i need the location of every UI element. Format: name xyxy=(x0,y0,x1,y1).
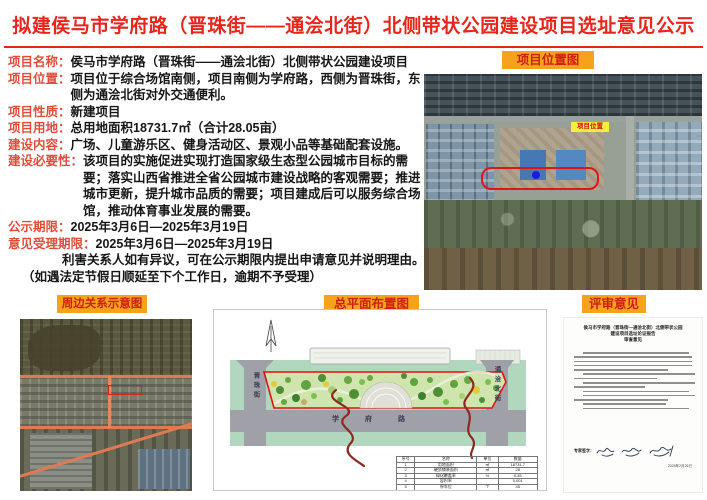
map-road xyxy=(20,426,192,429)
objection-note: 利害关系人如有异议，可在公示期限内提出申请意见并说明理由。 xyxy=(8,252,428,269)
info-text: 2025年3月6日—2025年3月19日 xyxy=(71,219,428,236)
doc-text-line xyxy=(583,395,695,397)
expert-signatures xyxy=(594,444,680,458)
info-row-notice-period: 公示期限： 2025年3月6日—2025年3月19日 xyxy=(8,219,428,236)
signature-label: 专家签字： xyxy=(574,448,594,454)
review-doc-body-lines xyxy=(574,352,692,412)
map-buildings xyxy=(138,449,190,489)
info-text: 广场、儿童游乐区、健身活动区、景观小品等基础配套设施。 xyxy=(71,137,428,154)
map-road xyxy=(108,376,111,428)
header-location-map: 项目位置图 xyxy=(502,51,594,69)
map-road xyxy=(20,375,192,378)
doc-text-line xyxy=(583,391,689,393)
header-review-opinion: 评审意见 xyxy=(582,295,646,313)
stadium-footprint xyxy=(310,348,450,364)
site-location-label: 项目位置 xyxy=(571,122,609,132)
road-label-left: 晋珠街 xyxy=(250,372,260,401)
review-date: 2025年2月26日 xyxy=(668,464,692,469)
road-label-right: 通浍北街 xyxy=(491,366,501,404)
site-marker-rect xyxy=(108,385,142,395)
info-row-name: 项目名称： 侯马市学府路（晋珠街——通浍北街）北侧带状公园建设项目 xyxy=(8,54,428,71)
table-row: 5 停车位 个 45 xyxy=(397,484,538,490)
title-divider xyxy=(4,46,703,48)
doc-text-line xyxy=(574,399,668,401)
info-row-location: 项目位置： 项目位于综合场馆南侧，项目南侧为学府路，西侧为晋珠街，东侧为通浍北街… xyxy=(8,71,428,104)
page-title: 拟建侯马市学府路（晋珠街——通浍北街）北侧带状公园建设项目选址意见公示 xyxy=(0,11,707,38)
doc-text-line xyxy=(574,365,692,367)
info-label: 项目用地： xyxy=(8,120,71,137)
info-label: 建设内容： xyxy=(8,137,71,154)
holiday-note: （如遇法定节假日顺延至下个工作日，逾期不予受理） xyxy=(8,269,428,286)
doc-text-line xyxy=(574,378,657,380)
info-row-content: 建设内容： 广场、儿童游乐区、健身活动区、景观小品等基础配套设施。 xyxy=(8,137,428,154)
info-text: 新建项目 xyxy=(71,104,428,121)
quantity-table: 序号 名称 单位 数量 1 用地面积 ㎡ 18731.7 2 硬质铺装面积 ㎡ … xyxy=(396,456,538,491)
site-marker-dot xyxy=(532,171,540,179)
review-doc-title-line3: 审查意见 xyxy=(564,337,702,343)
doc-text-line xyxy=(574,369,668,371)
map-buildings xyxy=(20,377,192,427)
site-boundary-outline xyxy=(481,167,599,190)
doc-text-line xyxy=(583,403,666,405)
project-info-block: 项目名称： 侯马市学府路（晋珠街——通浍北街）北侧带状公园建设项目 项目位置： … xyxy=(8,54,428,285)
info-row-land: 项目用地： 总用地面积18731.7㎡（合计28.05亩） xyxy=(8,120,428,137)
info-label: 意见受理期限： xyxy=(8,236,96,253)
info-text: 该项目的实施促进实现打造国家级生态型公园城市目标的需要；落实山西省推进全省公园城… xyxy=(83,153,428,219)
map-texture xyxy=(424,74,702,116)
header-surroundings-map: 周边关系示意图 xyxy=(57,295,147,313)
info-label: 项目位置： xyxy=(8,71,71,104)
info-label: 项目性质： xyxy=(8,104,71,121)
cell: 个 xyxy=(477,484,498,490)
info-row-necessity: 建设必要性： 该项目的实施促进实现打造国家级生态型公园城市目标的需要；落实山西省… xyxy=(8,153,428,219)
info-text: 2025年3月6日—2025年3月19日 xyxy=(96,236,428,253)
cell: 停车位 xyxy=(415,484,477,490)
north-arrow-icon xyxy=(266,320,276,352)
map-greenery xyxy=(424,200,702,248)
info-text: 侯马市学府路（晋珠街——通浍北街）北侧带状公园建设项目 xyxy=(71,54,428,71)
info-row-feedback-period: 意见受理期限： 2025年3月6日—2025年3月19日 xyxy=(8,236,428,253)
signature-row: 专家签字： xyxy=(574,444,694,458)
doc-text-line xyxy=(574,356,692,358)
public-notice-poster: 拟建侯马市学府路（晋珠街——通浍北街）北侧带状公园建设项目选址意见公示 项目名称… xyxy=(0,0,707,500)
location-satellite-map: 项目位置 xyxy=(424,74,702,290)
doc-text-line xyxy=(574,386,645,388)
info-text: 项目位于综合场馆南侧，项目南侧为学府路，西侧为晋珠街，东侧为通浍北街对外交通便利… xyxy=(71,71,428,104)
review-document: 侯马市学府路（晋珠街—通浍北街）北侧带状公园 建设项目选址论证报告 审查意见 专… xyxy=(563,317,703,493)
doc-text-line xyxy=(583,382,695,384)
cell: 45 xyxy=(498,484,538,490)
doc-text-line xyxy=(583,408,689,410)
review-doc-titles: 侯马市学府路（晋珠街—通浍北街）北侧带状公园 建设项目选址论证报告 审查意见 xyxy=(564,318,702,343)
map-village-patch xyxy=(28,325,100,371)
doc-text-line xyxy=(583,352,689,354)
site-plan-panel: 晋珠街 通浍北街 学府路 序号 名称 单位 数量 1 用地面积 ㎡ 18731.… xyxy=(213,309,547,491)
road-label-bottom: 学府路 xyxy=(332,414,431,424)
doc-text-line xyxy=(574,361,692,363)
info-label: 建设必要性： xyxy=(8,153,83,219)
cell: 5 xyxy=(397,484,415,490)
info-label: 公示期限： xyxy=(8,219,71,236)
map-field xyxy=(424,248,702,290)
doc-text-line xyxy=(583,373,695,375)
info-row-nature: 项目性质： 新建项目 xyxy=(8,104,428,121)
info-label: 项目名称： xyxy=(8,54,71,71)
surroundings-satellite-map xyxy=(20,319,192,491)
info-text: 总用地面积18731.7㎡（合计28.05亩） xyxy=(71,120,428,137)
